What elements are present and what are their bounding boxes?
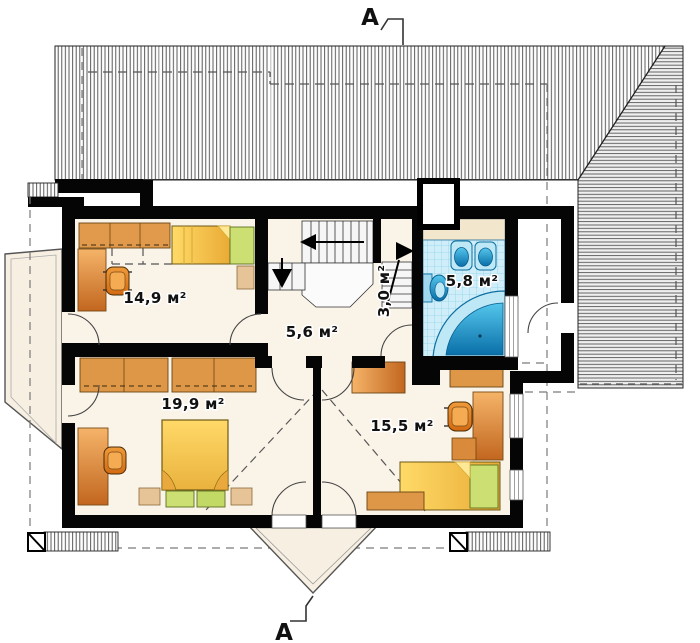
dormer-door-left-opening	[272, 515, 306, 528]
window-bedroom3-a	[510, 394, 523, 438]
section-letter-top: A	[361, 5, 379, 31]
washbasin	[451, 241, 472, 270]
label-hall-area: 5,6 м²	[286, 323, 338, 341]
dormer-door-right-opening	[322, 515, 356, 528]
desk	[78, 249, 106, 311]
bed-bench-green	[166, 491, 194, 507]
window-bedroom3-b	[510, 470, 523, 500]
desk	[473, 392, 503, 460]
label-stairs-area: 3,0 м²	[375, 265, 393, 317]
office-chair	[104, 447, 126, 474]
nightstand-green	[230, 227, 254, 264]
wardrobe	[79, 223, 170, 248]
wall-stair	[373, 219, 381, 263]
wall-left	[62, 206, 75, 312]
section-letter-bottom: A	[275, 620, 293, 643]
wall-chase	[412, 368, 440, 385]
wall-bedroom1-south	[62, 343, 268, 357]
label-bedroom3-area: 15,5 м²	[370, 417, 433, 435]
shelf	[367, 492, 424, 510]
section-leader-top	[381, 19, 403, 45]
dormer-bay	[246, 523, 380, 593]
nightstand	[139, 488, 160, 505]
nightstand	[231, 488, 252, 505]
wall-bottom	[62, 515, 272, 528]
toilet	[423, 274, 448, 302]
wardrobe	[80, 358, 168, 392]
label-bedroom2-area: 19,9 м²	[161, 395, 224, 413]
washbasin	[475, 242, 496, 270]
roof-top-plane	[55, 46, 665, 180]
wall-bathroom-west	[412, 219, 423, 356]
bed-bench-green	[197, 491, 225, 507]
floor-plan-canvas: 14,9 м² 5,6 м² 3,0 м² 5,8 м² 19,9 м² 15,…	[0, 0, 700, 643]
wall-top	[62, 206, 574, 219]
wall-hall-west	[255, 206, 268, 314]
wall-bathroom-south	[412, 356, 518, 370]
wardrobe	[172, 358, 256, 392]
wall-right-upper	[561, 206, 574, 303]
section-marker-bottom: A	[275, 596, 313, 643]
label-bedroom1-area: 14,9 м²	[123, 289, 186, 307]
balcony-terrace	[5, 249, 62, 449]
wall-right	[510, 383, 523, 394]
chimney	[420, 181, 457, 227]
nightstand	[237, 266, 254, 289]
wall-partition	[313, 368, 321, 515]
eave-strip-bottom-left	[28, 532, 118, 551]
label-bathroom-area: 5,8 м²	[446, 272, 498, 290]
attic-space-floor	[518, 219, 561, 371]
wall-hall-south	[255, 356, 272, 368]
section-marker-top: A	[361, 5, 403, 45]
attic-door-opening	[561, 303, 574, 333]
nightstand	[452, 438, 476, 460]
window-bathroom	[505, 296, 518, 357]
single-bed	[172, 226, 230, 264]
wall-bathroom-east	[505, 219, 518, 296]
section-leader-bottom	[290, 596, 313, 621]
eave-strip-bottom-right	[450, 532, 550, 551]
